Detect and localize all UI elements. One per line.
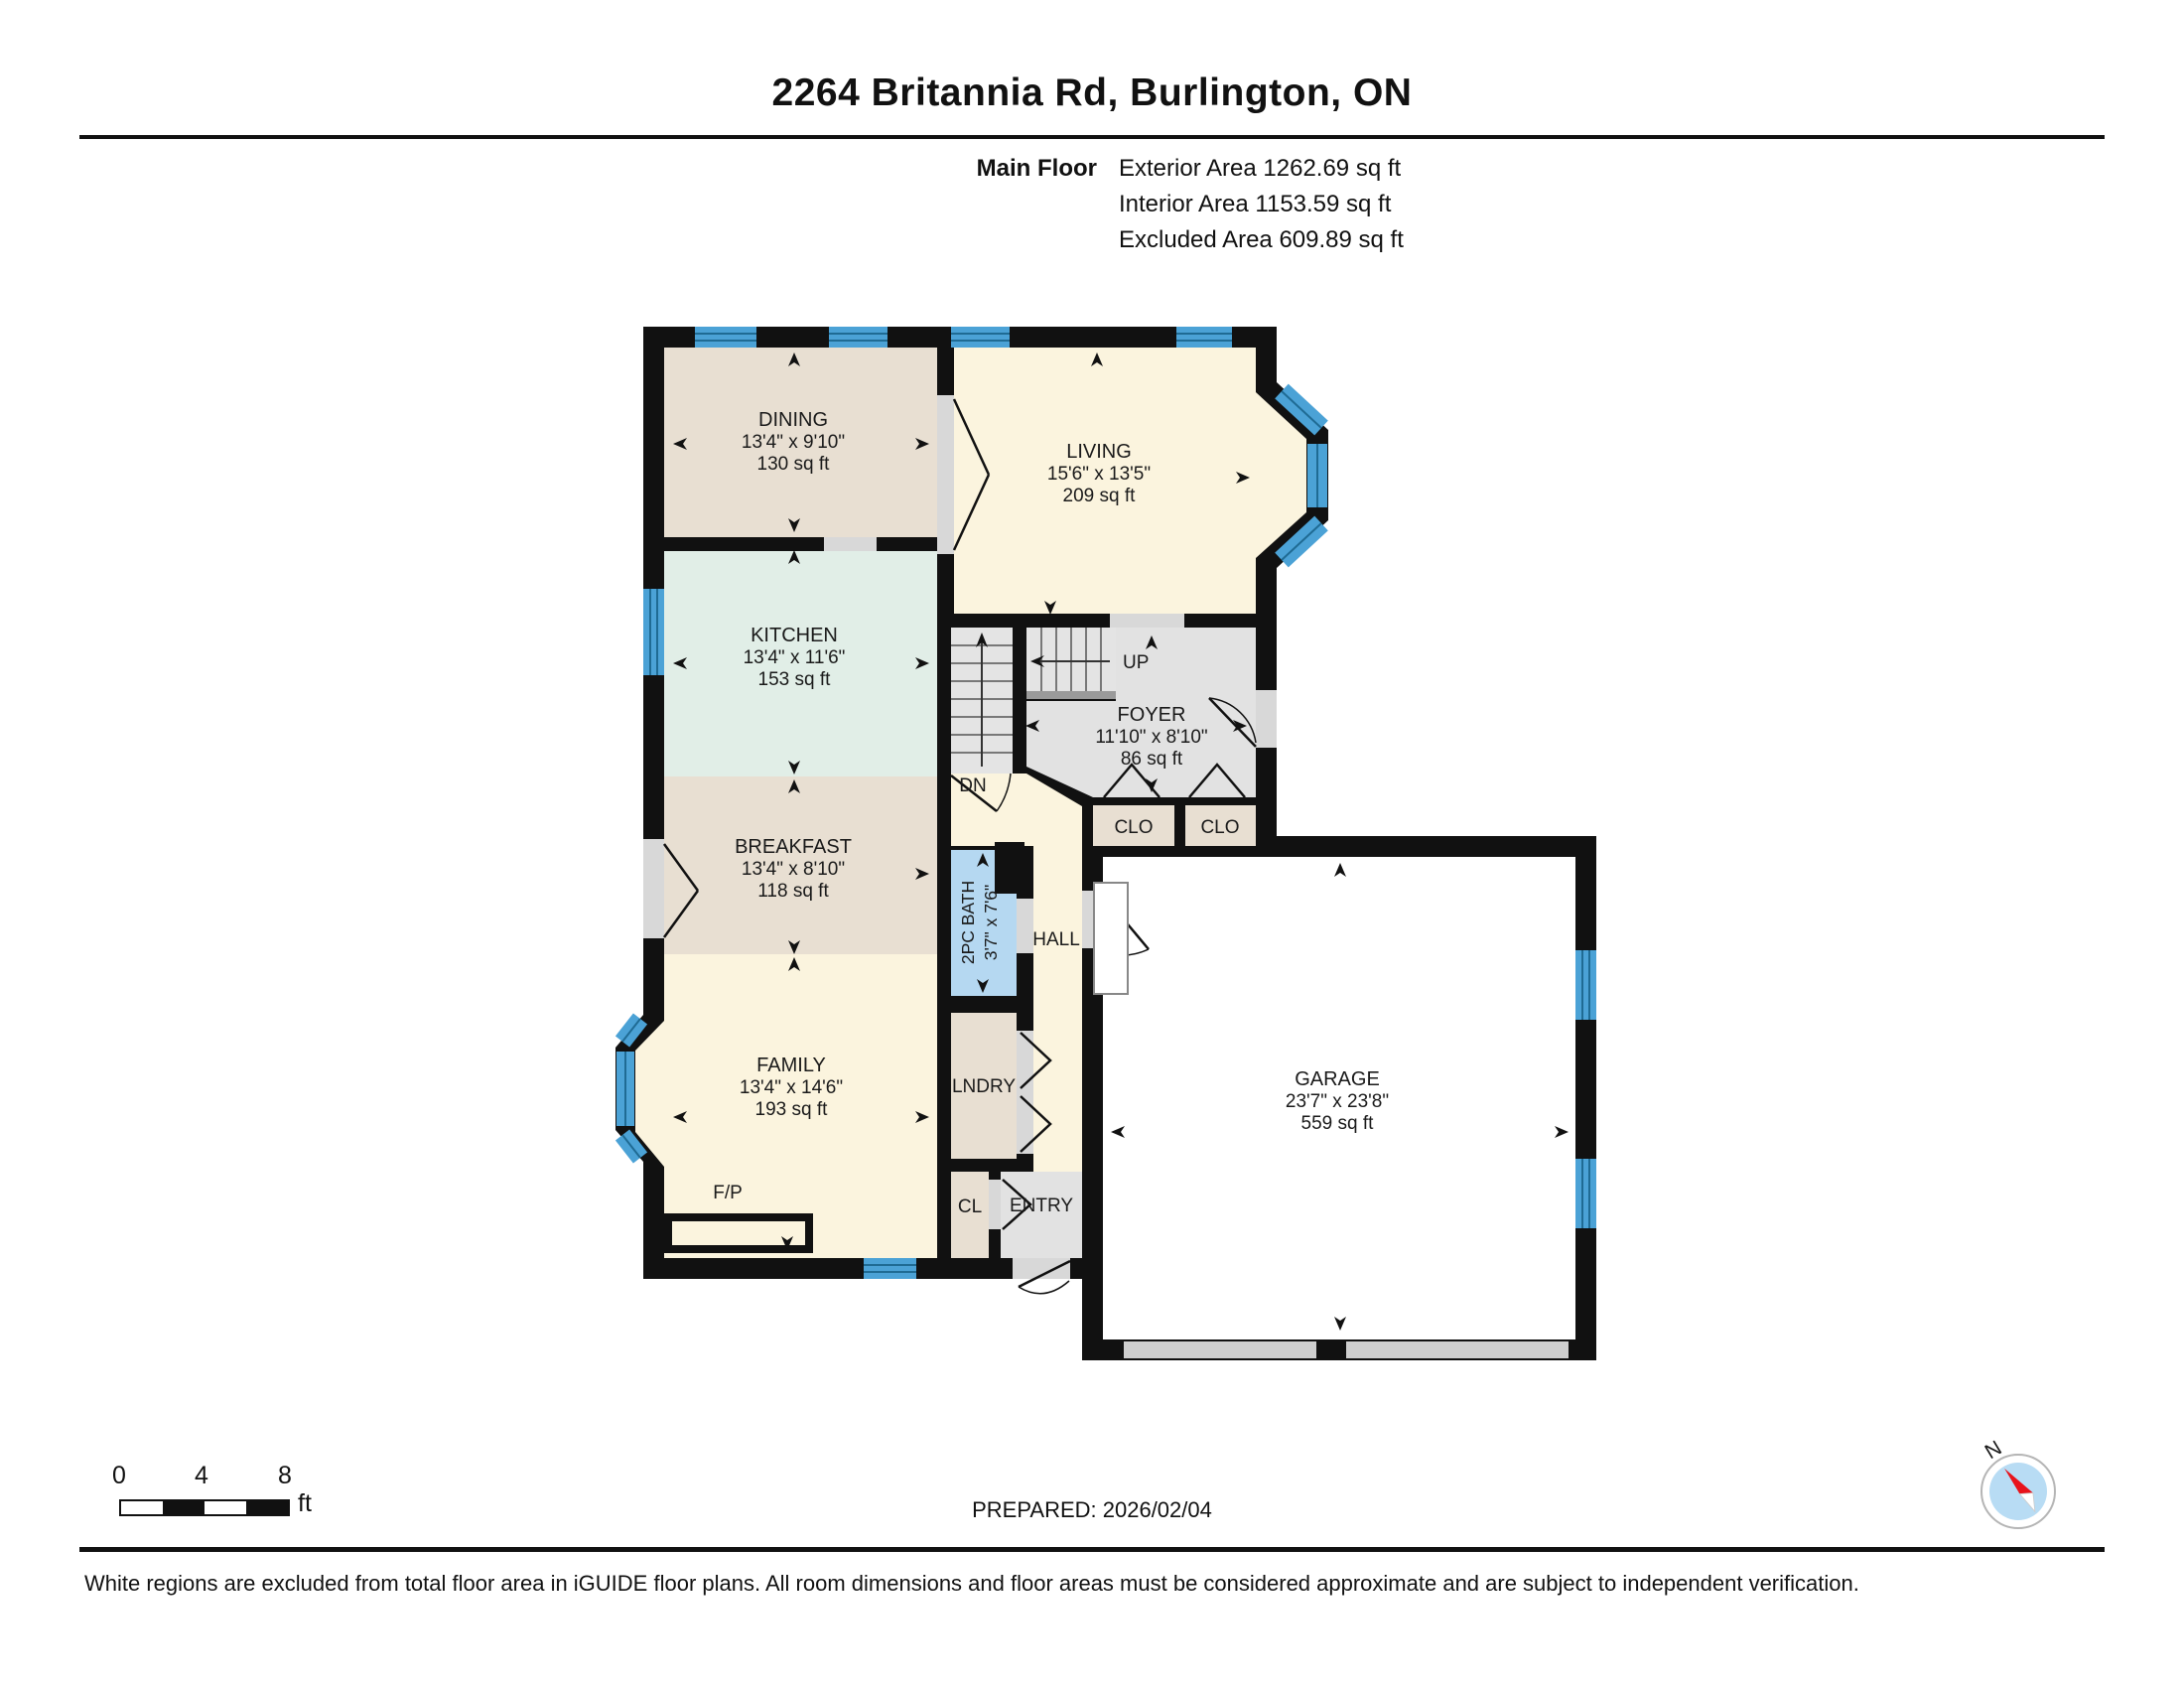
floor-label: Main Floor (680, 151, 1097, 187)
breakfast-area: 118 sq ft (757, 881, 829, 902)
dining-dims: 13'4" x 9'10" (742, 432, 845, 453)
cl-label: CL (958, 1196, 982, 1217)
scale-tick-8: 8 (278, 1462, 292, 1490)
opening-cl-door (989, 1180, 1001, 1229)
prepared-date: PREPARED: 2026/02/04 (0, 1497, 2184, 1523)
living-label: LIVING (1066, 441, 1132, 463)
fireplace-label: F/P (713, 1183, 743, 1203)
floor-stats: Main Floor Exterior Area 1262.69 sq ft I… (680, 151, 1404, 258)
family-label: FAMILY (756, 1055, 826, 1076)
interior-area: Interior Area 1153.59 sq ft (1119, 187, 1404, 222)
scale-tick-0: 0 (112, 1462, 126, 1490)
garage-area: 559 sq ft (1301, 1113, 1375, 1134)
header-divider (79, 135, 2105, 139)
family-area: 193 sq ft (755, 1099, 829, 1120)
closet1-label: CLO (1114, 817, 1153, 838)
exterior-area: Exterior Area 1262.69 sq ft (1119, 151, 1404, 187)
garage-door-panel (1094, 883, 1128, 994)
excluded-area: Excluded Area 609.89 sq ft (1119, 222, 1404, 258)
garage-dims: 23'7" x 23'8" (1286, 1091, 1389, 1112)
garage-label: GARAGE (1295, 1068, 1380, 1090)
opening-dining-kitchen (824, 537, 877, 551)
opening-laundry-door (1017, 1031, 1033, 1154)
disclaimer-text: White regions are excluded from total fl… (84, 1571, 2070, 1597)
family-dims: 13'4" x 14'6" (740, 1077, 843, 1098)
compass: N (1959, 1428, 2078, 1547)
entry-label: ENTRY (1010, 1196, 1073, 1216)
opening-bath-door (1017, 899, 1033, 953)
living-dims: 15'6" x 13'5" (1047, 464, 1151, 485)
laundry-label: LNDRY (952, 1076, 1016, 1097)
kitchen-dims: 13'4" x 11'6" (744, 647, 846, 668)
scale-tick-4: 4 (195, 1462, 208, 1490)
breakfast-label: BREAKFAST (735, 836, 852, 858)
opening-garage-door-left (1124, 1341, 1316, 1358)
floor-plan-drawing: DINING 13'4" x 9'10" 130 sq ft LIVING 15… (556, 298, 1668, 1390)
bath-label: 2PC BATH (958, 881, 978, 964)
foyer-label: FOYER (1118, 704, 1186, 726)
foyer-dims: 11'10" x 8'10" (1095, 727, 1207, 748)
kitchen-label: KITCHEN (751, 625, 838, 646)
stairs-dn-label: DN (959, 775, 986, 796)
stairs-up-landing-edge (1026, 691, 1116, 699)
page-title: 2264 Britannia Rd, Burlington, ON (0, 71, 2184, 115)
foyer-area: 86 sq ft (1121, 749, 1183, 770)
bath-dims: 3'7" x 7'6" (981, 885, 1001, 961)
opening-garage-door-right (1346, 1341, 1569, 1358)
living-area: 209 sq ft (1063, 486, 1137, 506)
dining-label: DINING (758, 409, 828, 431)
opening-dining-living (937, 395, 954, 554)
breakfast-dims: 13'4" x 8'10" (742, 859, 845, 880)
opening-breakfast-patio (643, 839, 664, 938)
floor-plan-page: 2264 Britannia Rd, Burlington, ON Main F… (0, 0, 2184, 1688)
opening-living-foyer (1110, 614, 1184, 628)
stairs-up-label: UP (1123, 652, 1149, 673)
footer-divider (79, 1547, 2105, 1552)
dining-area: 130 sq ft (757, 454, 831, 475)
kitchen-area: 153 sq ft (758, 669, 832, 690)
closet2-label: CLO (1200, 817, 1239, 838)
hall-label: HALL (1032, 929, 1080, 950)
opening-front-door (1256, 690, 1277, 748)
